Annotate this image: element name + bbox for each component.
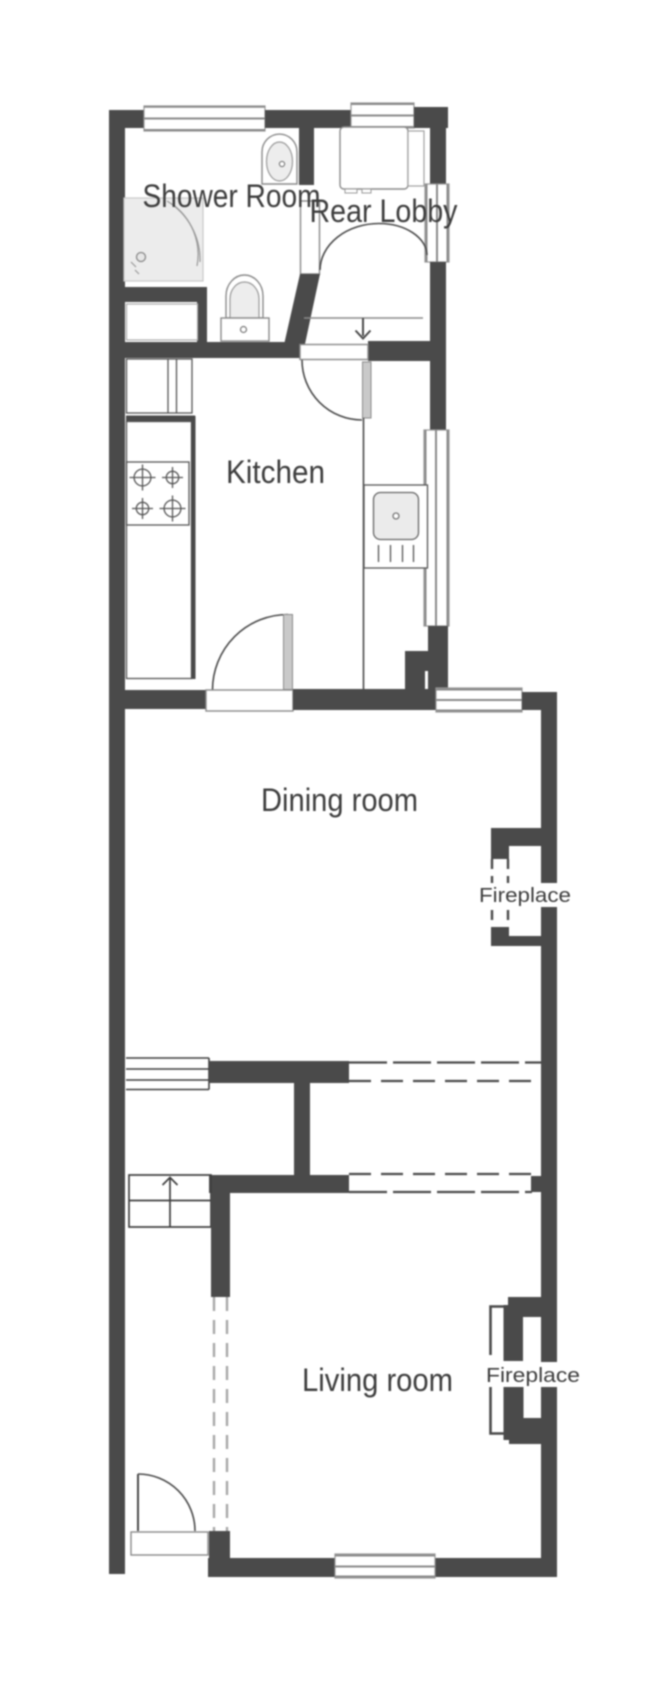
svg-text:Dining room: Dining room (261, 782, 418, 818)
svg-text:Fireplace: Fireplace (479, 885, 571, 907)
svg-text:Kitchen: Kitchen (226, 454, 325, 490)
svg-text:Living room: Living room (302, 1362, 453, 1398)
svg-text:Shower Room: Shower Room (143, 178, 321, 214)
svg-text:Rear Lobby: Rear Lobby (310, 193, 458, 229)
svg-text:Fireplace: Fireplace (486, 1365, 580, 1387)
